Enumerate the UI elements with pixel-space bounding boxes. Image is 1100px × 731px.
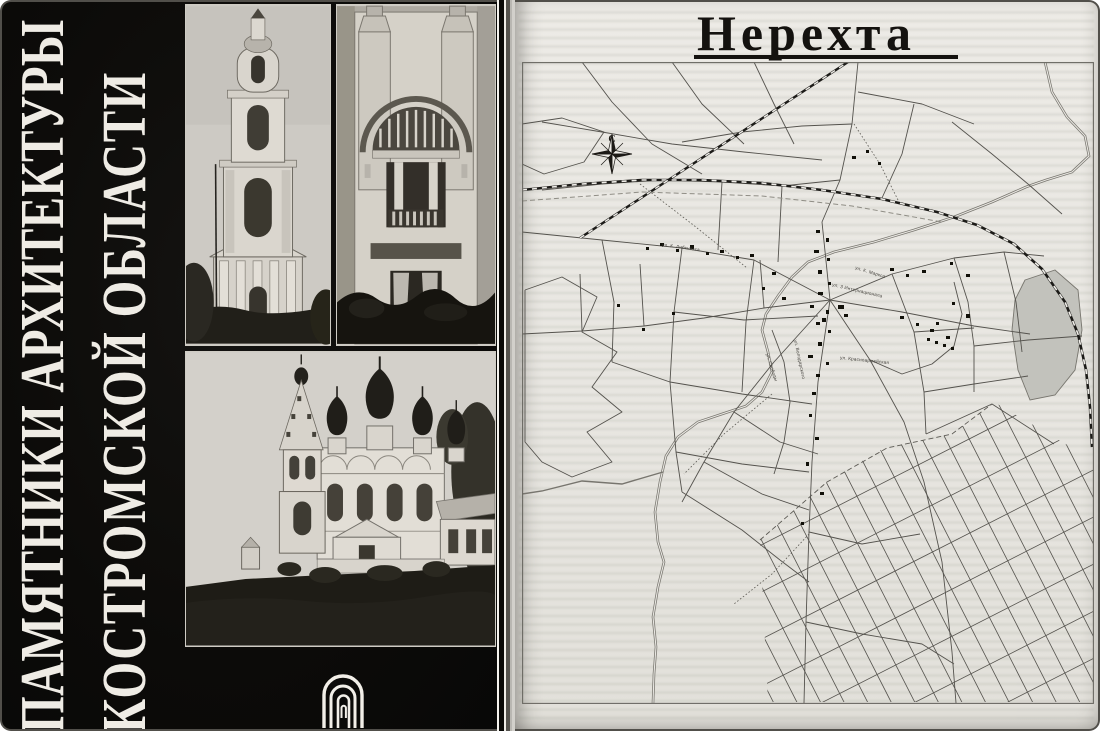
city-map-nerekhta: С ул. К. Либкнехтаул. К. Марксаул. 3 Инт…: [522, 62, 1094, 704]
street-labels: ул. К. Либкнехтаул. К. Марксаул. 3 Интер…: [662, 242, 890, 382]
bush4: [277, 562, 301, 576]
facade-illustration: [337, 5, 495, 345]
facade-photo: [336, 4, 496, 346]
roads-dashed: [760, 404, 992, 540]
bush1: [309, 567, 341, 583]
street-label: ул. К. Либкнехта: [662, 242, 700, 252]
street-network: [522, 62, 1082, 703]
page-gutter: [497, 0, 515, 731]
street-label: ул. Свободы: [765, 353, 779, 382]
map-page: Нерехта: [515, 2, 1098, 729]
book-scan: ПАМЯТНИКИ АРХИТЕКТУРЫ КОСТРОМСКОЙ ОБЛАСТ…: [0, 0, 1100, 731]
cover-page: ПАМЯТНИКИ АРХИТЕКТУРЫ КОСТРОМСКОЙ ОБЛАСТ…: [2, 2, 497, 729]
bush2: [367, 565, 403, 581]
wall-left: [337, 6, 355, 344]
pole: [216, 164, 217, 324]
bush-highlight2: [424, 303, 467, 321]
cover-title-line1: ПАМЯТНИКИ АРХИТЕКТУРЫ: [10, 19, 77, 729]
bell-tower-illustration: [186, 5, 330, 345]
compass-rose-icon: С: [592, 134, 632, 174]
facade: [355, 6, 477, 344]
road-along-railway: [522, 192, 942, 222]
publisher-logo-nested-arches-icon: [320, 671, 366, 729]
bell-tower-photo: [185, 4, 331, 346]
map-title: Нерехта: [515, 4, 1098, 62]
church-illustration: [186, 352, 495, 646]
bush3: [422, 561, 450, 577]
bush-highlight: [349, 298, 385, 318]
railway: [522, 62, 1092, 447]
church-photo: [185, 351, 496, 647]
title-underline: [694, 55, 958, 59]
wall-right: [477, 6, 495, 344]
street-label: ул. Красноармейская: [840, 354, 890, 365]
cover-title-line2: КОСТРОМСКОЙ ОБЛАСТИ: [92, 71, 159, 729]
street-label: ул. К. Маркса: [855, 265, 886, 279]
street-label: ул. Володарского: [793, 339, 806, 380]
pond: [1012, 270, 1082, 400]
